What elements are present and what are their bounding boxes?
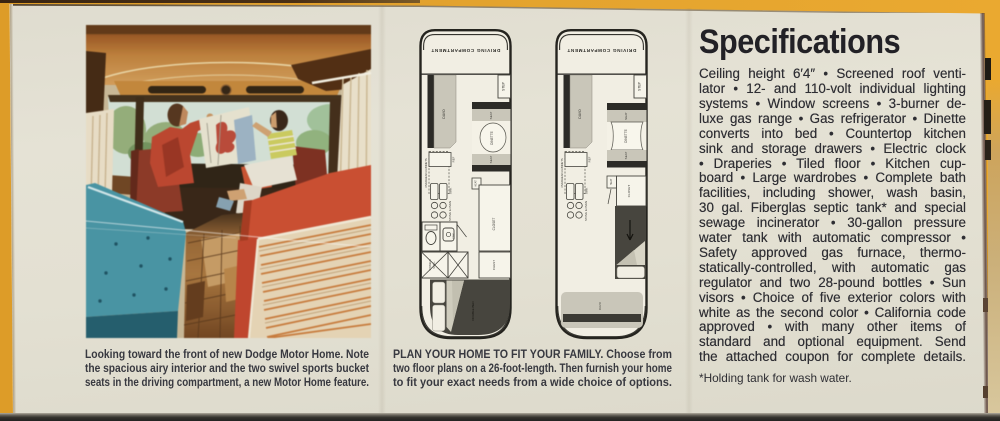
svg-text:DOUBLE BED: DOUBLE BED <box>471 300 475 320</box>
svg-text:STEP: STEP <box>637 81 641 91</box>
svg-text:SINK: SINK <box>448 188 452 195</box>
svg-text:DRIVING COMPARTMENT: DRIVING COMPARTMENT <box>430 48 500 53</box>
svg-text:STOVE & OVEN: STOVE & OVEN <box>448 201 452 221</box>
svg-text:DAVO: DAVO <box>598 301 602 310</box>
svg-text:DRIVING COMPARTMENT: DRIVING COMPARTMENT <box>567 48 637 53</box>
svg-text:SINK: SINK <box>452 233 455 239</box>
svg-text:HEAT: HEAT <box>474 180 477 187</box>
svg-text:REF: REF <box>451 156 455 162</box>
svg-text:CHEST: CHEST <box>492 260 496 270</box>
svg-text:STEP: STEP <box>501 81 505 91</box>
svg-text:SINK: SINK <box>585 188 589 195</box>
svg-text:OVERHEAD CABINETS: OVERHEAD CABINETS <box>560 158 564 187</box>
svg-text:SEAT: SEAT <box>624 112 628 120</box>
svg-text:STOVE & OVEN: STOVE & OVEN <box>584 201 588 221</box>
svg-text:SEAT: SEAT <box>489 112 493 120</box>
svg-text:SHOWER: SHOWER <box>429 259 432 270</box>
svg-text:DAVO: DAVO <box>578 109 582 119</box>
svg-text:REF: REF <box>588 156 592 162</box>
svg-text:STALL: STALL <box>433 261 436 269</box>
svg-text:CLOSET: CLOSET <box>627 185 631 197</box>
svg-text:SEAT: SEAT <box>489 156 493 164</box>
svg-text:HEAT: HEAT <box>610 178 613 185</box>
svg-text:DINETTE: DINETTE <box>490 131 494 145</box>
svg-text:OVERHEAD CABINETS: OVERHEAD CABINETS <box>424 158 428 187</box>
svg-text:DINETTE: DINETTE <box>624 129 628 143</box>
svg-text:CLOSET: CLOSET <box>492 218 496 231</box>
svg-text:DAVO: DAVO <box>442 109 446 119</box>
svg-text:SEAT: SEAT <box>624 152 628 160</box>
